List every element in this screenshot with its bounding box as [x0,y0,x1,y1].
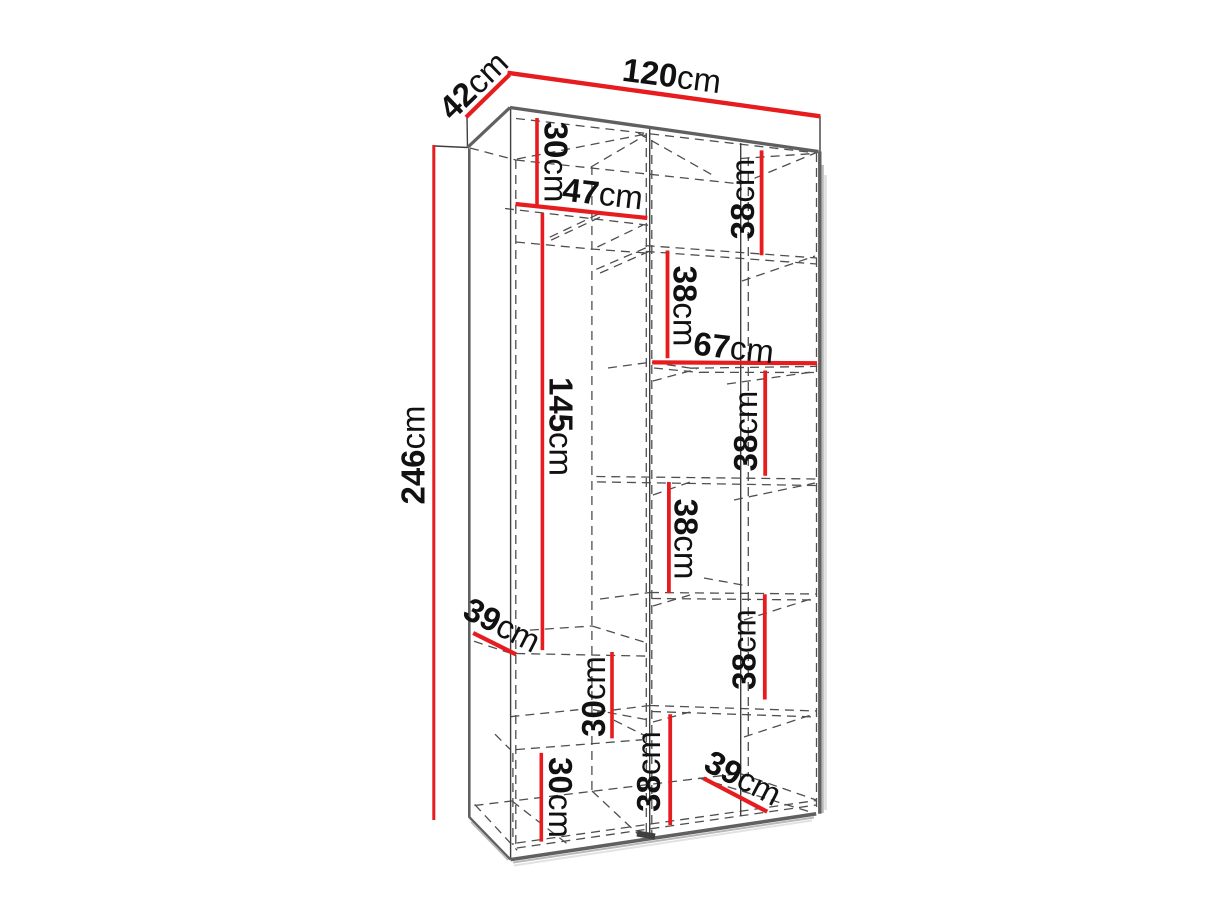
svg-text:38cm: 38cm [727,391,764,472]
svg-text:38cm: 38cm [724,159,761,240]
svg-text:246cm: 246cm [394,405,431,504]
svg-text:38cm: 38cm [630,731,667,812]
svg-text:30cm: 30cm [542,757,579,838]
svg-text:145cm: 145cm [543,377,580,476]
svg-text:30cm: 30cm [575,656,612,737]
svg-text:38cm: 38cm [725,609,762,690]
svg-text:38cm: 38cm [668,499,705,580]
